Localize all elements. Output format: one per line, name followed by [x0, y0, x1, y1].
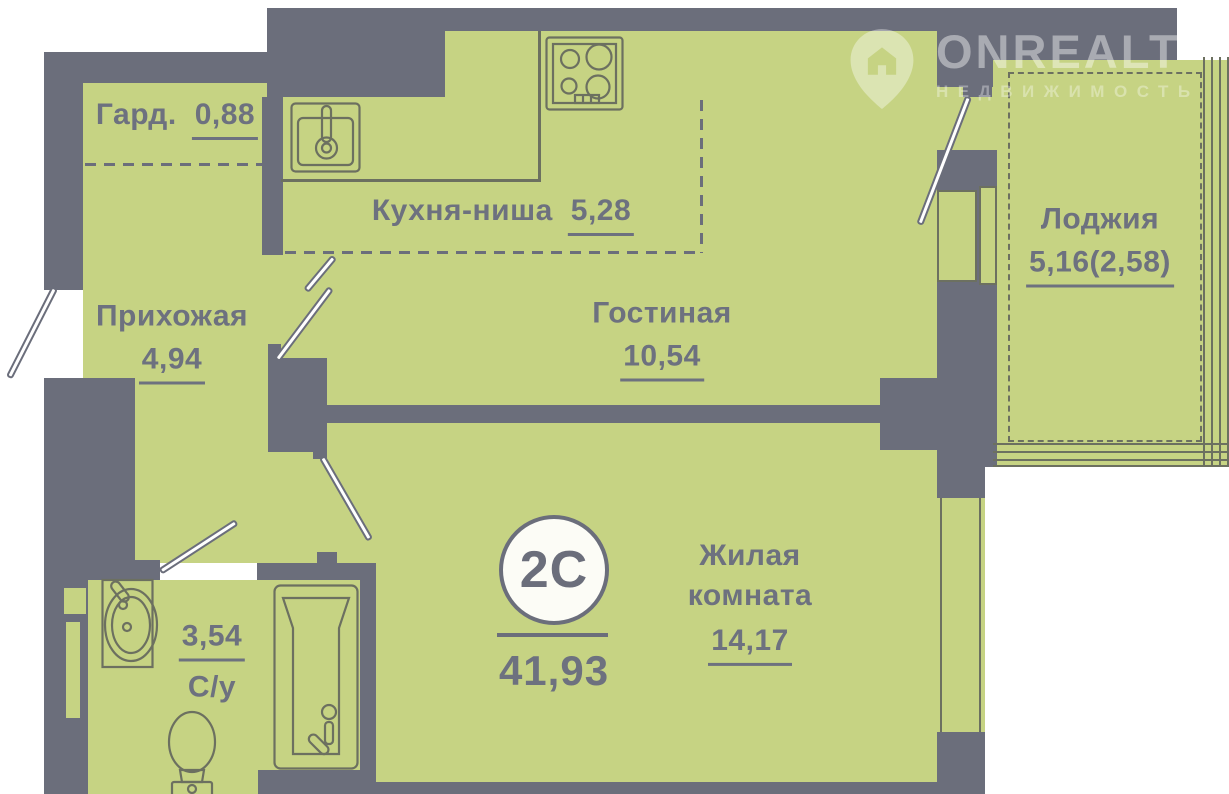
room-area-value: 14,17	[708, 624, 792, 666]
room-label-wardrobe: Гард. 0,88	[96, 98, 258, 140]
watermark: ONREALT НЕДВИЖИМОСТЬ	[844, 26, 1200, 114]
wall-segment	[880, 378, 937, 450]
loggia-glazing-line	[993, 451, 1229, 453]
bathtub-icon	[273, 584, 359, 770]
zone-divider-dashed	[285, 251, 703, 254]
wall-segment	[268, 358, 327, 452]
stove-icon	[545, 36, 625, 112]
counter-edge-line	[538, 31, 541, 182]
washbasin-icon	[101, 578, 163, 670]
loggia-glazing-line	[1219, 57, 1221, 467]
wall-segment	[262, 97, 283, 255]
brand-name: ONREALT	[936, 26, 1200, 78]
room-name: С/у	[188, 671, 236, 705]
room-area-value: 5,16(2,58)	[1026, 246, 1174, 288]
room-name: Прихожая	[96, 300, 248, 334]
room-area-value: 3,54	[179, 620, 245, 662]
vent-shaft	[66, 622, 80, 718]
room-area-value: 10,54	[620, 340, 704, 382]
loggia-glazing-line	[1211, 57, 1213, 467]
wall-segment	[44, 560, 160, 580]
wall-segment	[44, 52, 83, 290]
room-area-value: 0,88	[192, 98, 258, 140]
room-label-bedroom: Жилая комната 14,17	[661, 536, 839, 666]
wall-segment	[258, 770, 376, 794]
wall-segment	[257, 563, 376, 580]
room-label-kitchen: Кухня-ниша 5,28	[372, 194, 634, 236]
badge-divider	[497, 633, 608, 637]
door-swing-entrance	[6, 286, 58, 379]
floor-plan: Гард. 0,88 Кухня-ниша 5,28 Прихожая 4,94…	[0, 0, 1229, 794]
toilet-icon	[164, 709, 220, 794]
brand-pin-house-icon	[844, 26, 920, 114]
wall-segment	[360, 580, 376, 783]
apartment-type-badge: 2С	[499, 515, 609, 625]
wall-segment	[267, 8, 445, 97]
vent-shaft	[64, 588, 86, 614]
room-name: Жилая комната	[661, 536, 839, 615]
room-name: Гард.	[96, 98, 177, 132]
counter-edge-line	[281, 179, 541, 182]
room-label-hallway: Прихожая 4,94	[96, 300, 248, 385]
wall-segment	[44, 52, 267, 83]
room-label-bathroom: 3,54 С/у	[179, 620, 245, 705]
apartment-type-label: 2С	[520, 540, 588, 600]
loggia-glazing-line	[1203, 57, 1205, 467]
loggia-glazing-line	[993, 465, 1229, 467]
floor-window-bay	[937, 498, 985, 732]
room-label-loggia: Лоджия 5,16(2,58)	[1026, 203, 1174, 288]
kitchen-sink-icon	[290, 102, 362, 174]
zone-divider-dashed	[85, 163, 267, 166]
wall-segment	[937, 450, 997, 467]
room-label-living: Гостиная 10,54	[592, 297, 732, 382]
wall-segment	[937, 467, 985, 498]
loggia-glazing-line	[993, 443, 1229, 445]
zone-divider-dashed	[700, 100, 703, 253]
wall-segment	[323, 405, 900, 423]
room-name: Гостиная	[592, 297, 732, 331]
room-area-value: 4,94	[139, 343, 205, 385]
wall-segment	[44, 378, 135, 563]
total-area-value: 41,93	[499, 647, 609, 695]
wall-segment	[376, 782, 985, 794]
room-name: Лоджия	[1041, 203, 1159, 237]
wall-segment	[317, 552, 337, 564]
loggia-window-frame	[937, 190, 977, 282]
window-frame-line	[979, 498, 981, 732]
loggia-window-frame	[979, 186, 997, 285]
room-name: Кухня-ниша	[372, 194, 553, 228]
room-area-value: 5,28	[568, 194, 634, 236]
loggia-glazing-line	[993, 459, 1229, 461]
brand-tagline: НЕДВИЖИМОСТЬ	[936, 82, 1200, 102]
floor-hall-opening	[262, 253, 283, 358]
window-frame-line	[940, 498, 942, 732]
